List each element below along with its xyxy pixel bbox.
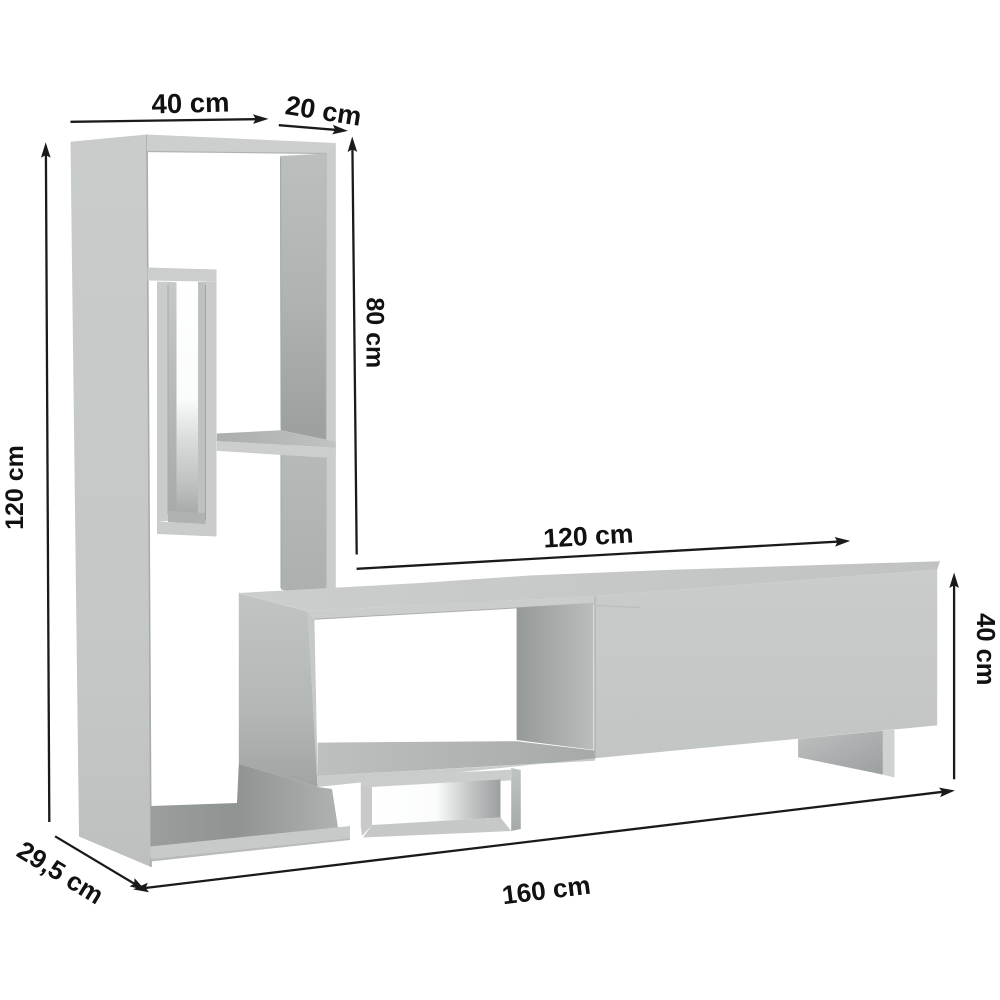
svg-text:40 cm: 40 cm: [151, 86, 230, 119]
svg-text:120 cm: 120 cm: [542, 518, 634, 553]
svg-text:40 cm: 40 cm: [971, 613, 999, 685]
svg-text:80 cm: 80 cm: [361, 297, 389, 368]
svg-text:120 cm: 120 cm: [1, 445, 29, 530]
